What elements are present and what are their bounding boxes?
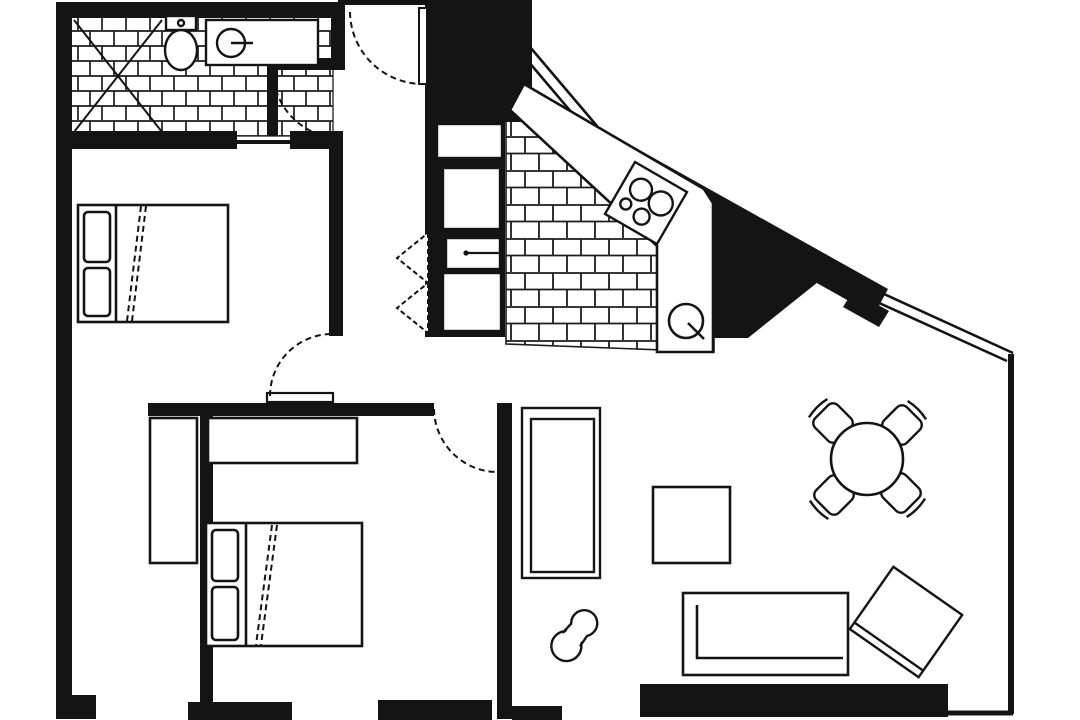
wall-bottom-1 [188,702,292,720]
wall-left-foot [56,695,96,719]
sofa-icon [683,593,848,675]
floor-plan-image [0,0,1080,720]
kitchen-cabinet-icon [437,124,502,158]
wall-living-bottom [640,684,948,717]
bed-icon [206,523,362,646]
armchair-icon [850,567,962,677]
dishwasher-icon [443,273,501,331]
window-right-diagonal-inner [877,302,1007,361]
bedroom-1 [78,205,333,402]
wall-bathroom-bottom-thin [235,140,292,144]
wall-bottom-2 [378,700,492,720]
wall-left [56,2,72,700]
bedroom2-door-arc [434,409,496,472]
entry [350,8,427,84]
dining-table-icon [831,423,903,495]
entry-door-leaf [419,8,427,84]
bedroom1-door-arc [270,334,332,396]
wall-hall-bottom [148,403,434,416]
bedroom1-door-leaf [267,393,333,402]
appliance-column-units [437,124,502,331]
wall-bathroom-inner-v [267,70,278,136]
floor-ornament-icon [545,604,604,667]
fridge-icon [443,168,500,229]
floor-plan-svg [0,0,1080,720]
coffee-table-icon [653,487,730,563]
shelf-unit-icon [522,408,600,578]
dining-set [806,396,929,522]
kitchen-sink-icon [669,304,704,339]
wall-living-divider [497,403,512,719]
dresser-icon [208,418,357,463]
toilet-icon [165,16,197,70]
wall-bathroom-bottom-left [56,131,237,149]
wardrobe-icon [150,418,197,563]
bedroom-2 [206,409,496,646]
outline-walls [946,354,1013,714]
bathtub-icon [206,20,318,65]
wall-bottom-3 [512,706,562,720]
wall-entry-lintel [338,0,430,5]
living-dining [522,396,962,677]
closet-nook [150,418,197,563]
wall-bedroom1-right [329,149,343,336]
bifold-door-icon [397,233,428,333]
bed-icon [78,205,228,322]
window-right-diagonal-outer [884,294,1013,353]
entry-door-arc [350,12,425,84]
